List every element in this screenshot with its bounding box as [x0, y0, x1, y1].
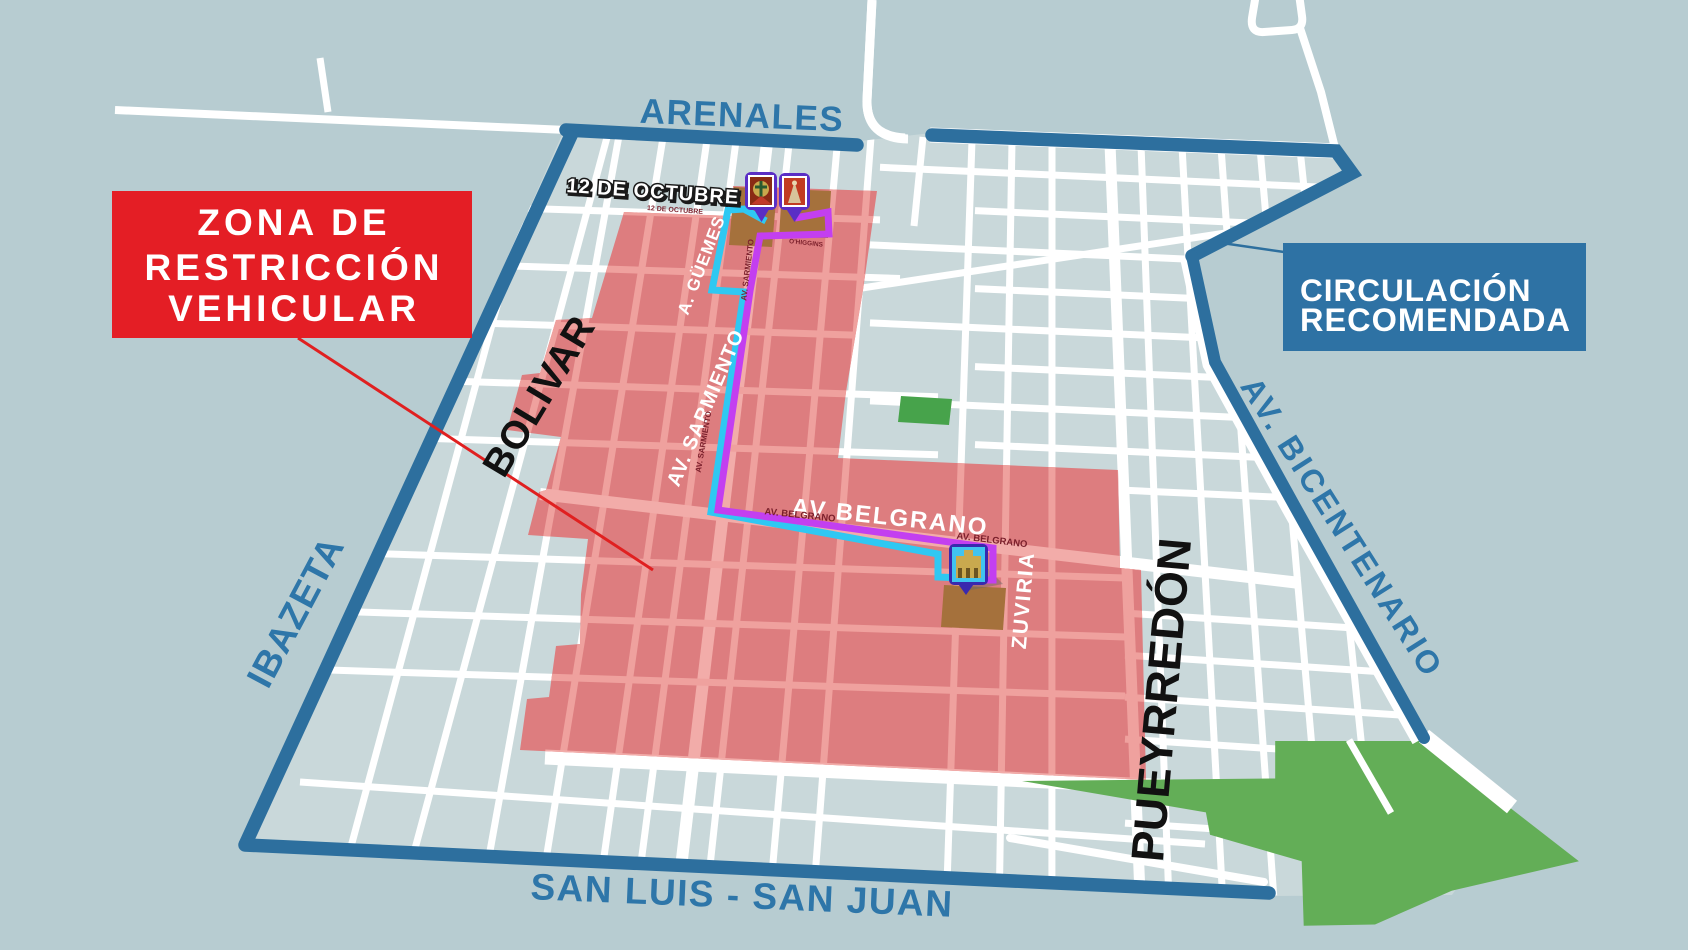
svg-text:ZONA DE: ZONA DE [197, 202, 390, 243]
svg-text:VEHICULAR: VEHICULAR [168, 288, 420, 329]
svg-text:RECOMENDADA: RECOMENDADA [1300, 302, 1571, 338]
svg-text:RESTRICCIÓN: RESTRICCIÓN [145, 246, 444, 288]
